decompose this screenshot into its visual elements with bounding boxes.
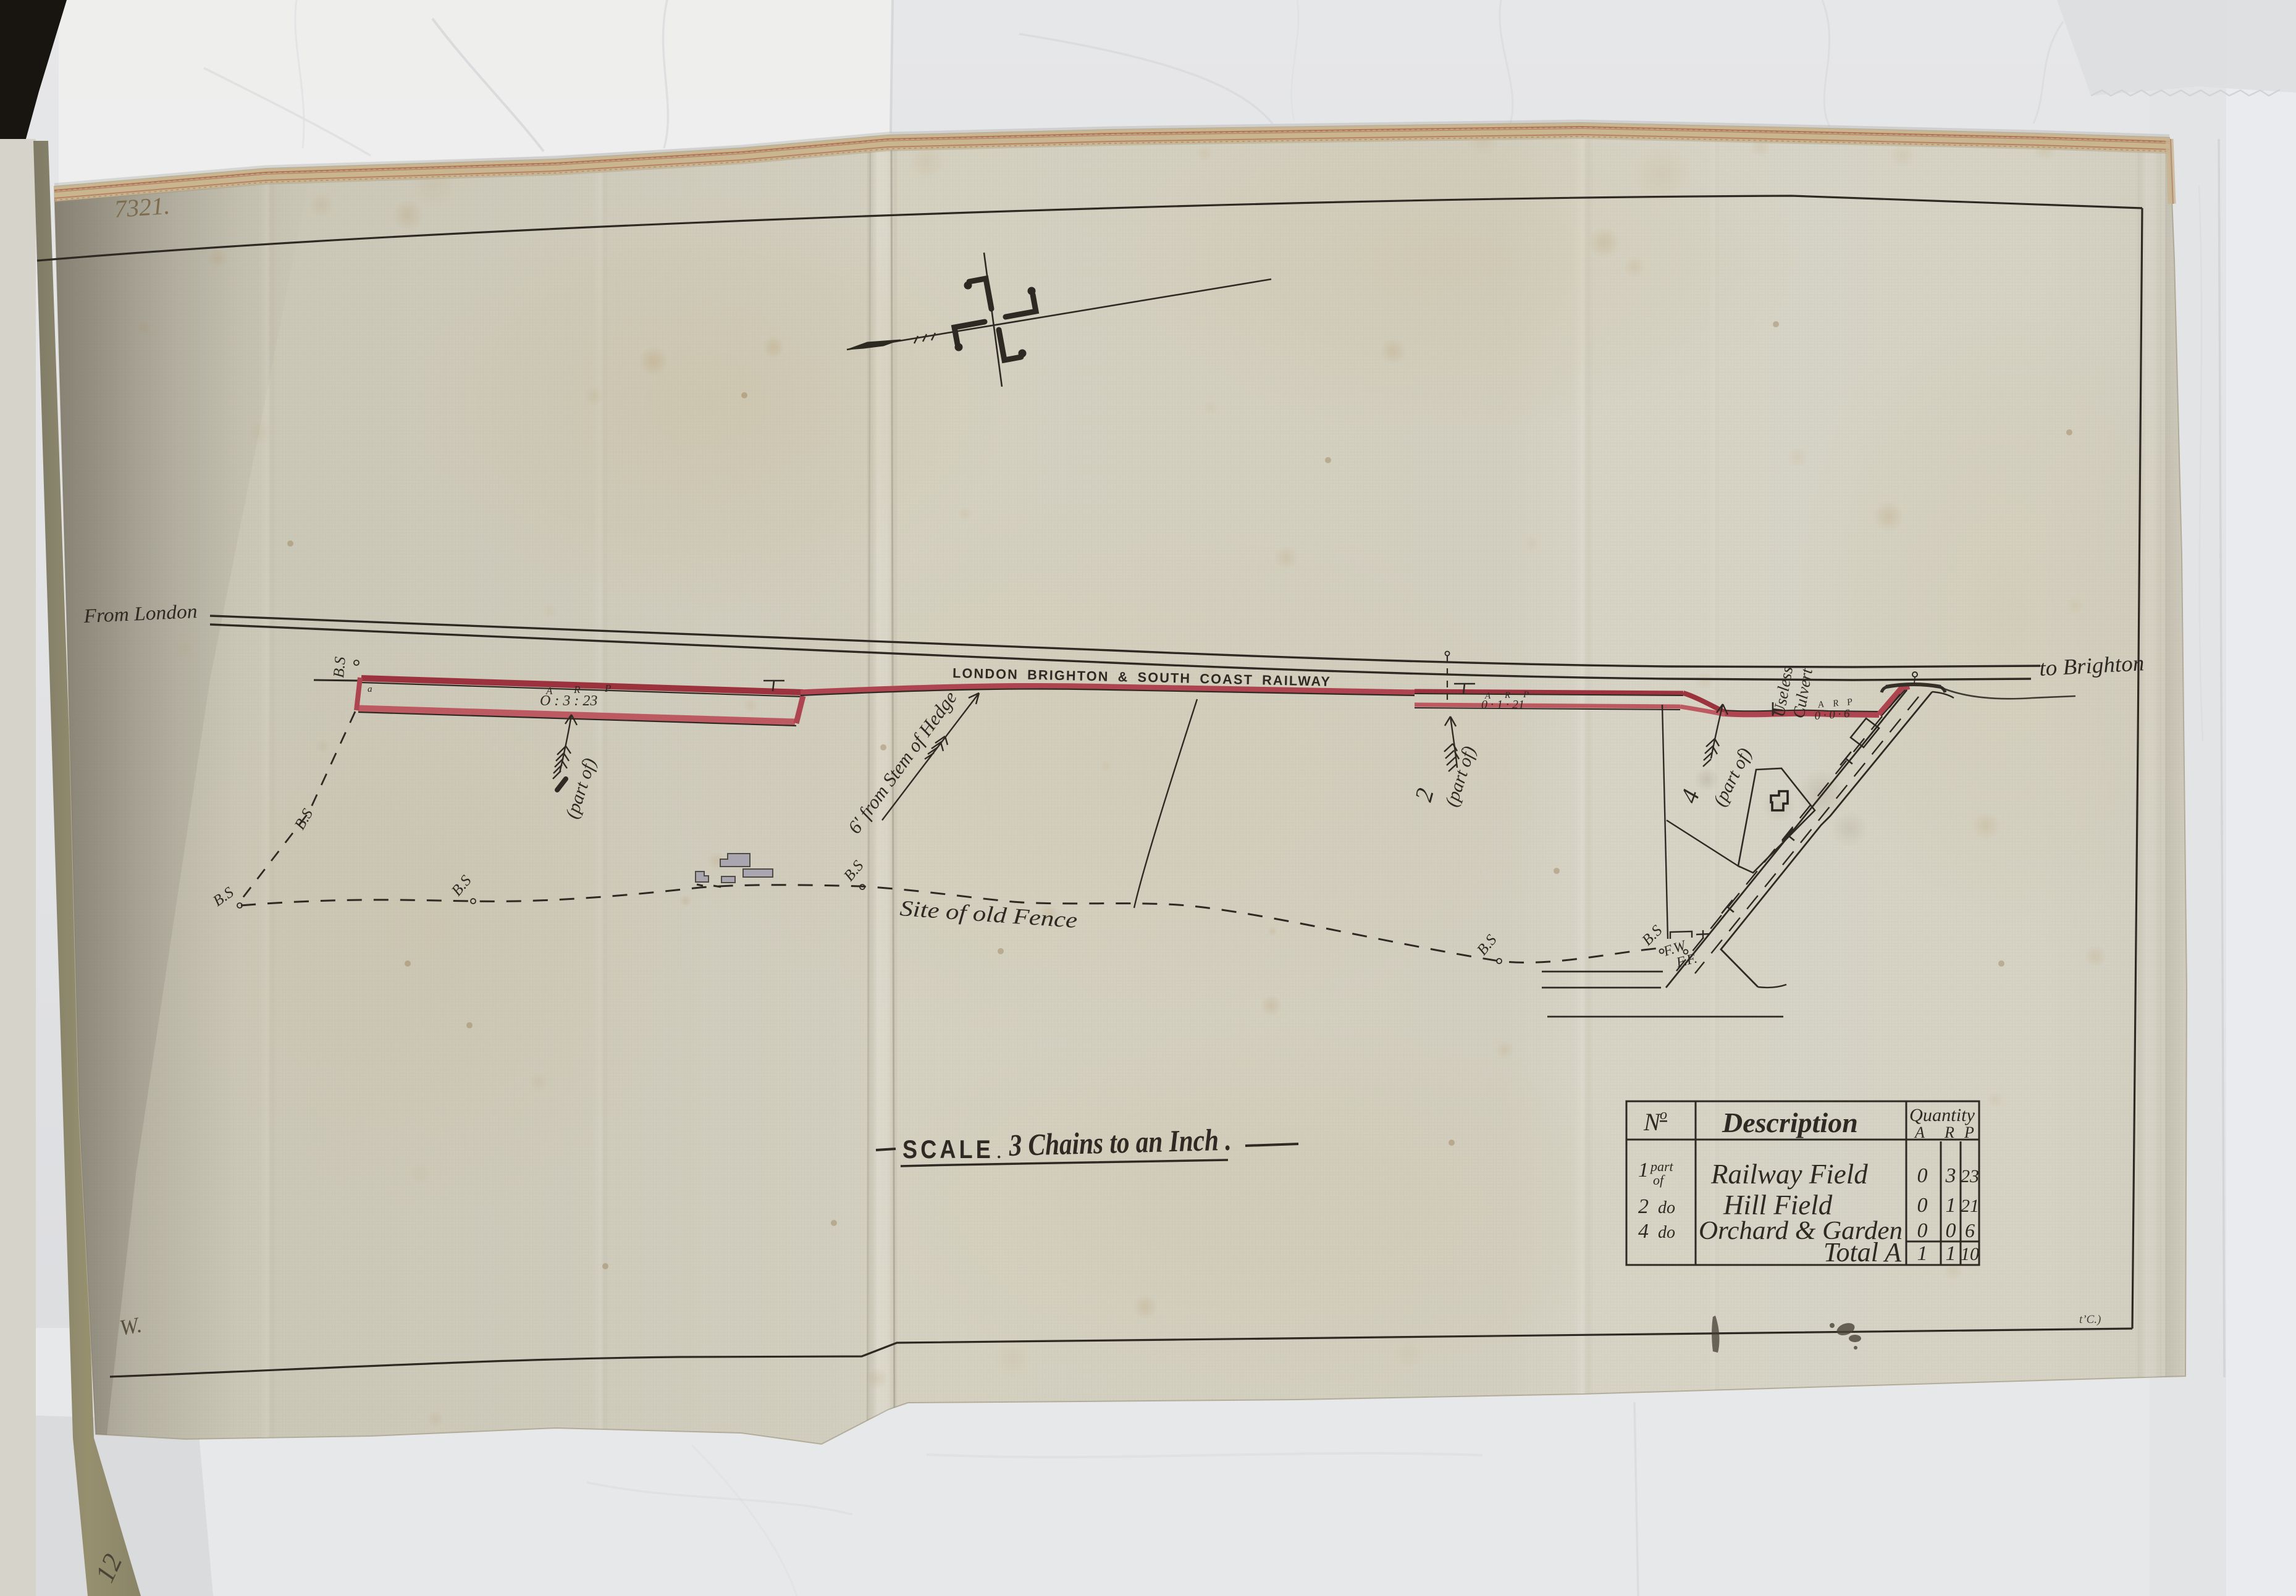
svg-text:2: 2 xyxy=(1638,1195,1649,1218)
svg-text:P: P xyxy=(1964,1123,1974,1141)
svg-text:0: 0 xyxy=(1917,1164,1928,1187)
svg-text:O : 3 : 23: O : 3 : 23 xyxy=(540,693,597,709)
svg-text:Hill Field: Hill Field xyxy=(1723,1190,1833,1220)
svg-text:t’C.): t’C.) xyxy=(2079,1313,2101,1326)
svg-text:4: 4 xyxy=(1638,1220,1649,1243)
svg-text:10: 10 xyxy=(1961,1244,1979,1264)
svg-text:W.: W. xyxy=(117,1312,143,1340)
svg-text:.: . xyxy=(997,1144,1001,1162)
svg-text:7321.: 7321. xyxy=(113,191,170,223)
svg-text:23: 23 xyxy=(1961,1166,1979,1186)
svg-text:0 · 0 · 6: 0 · 0 · 6 xyxy=(1814,707,1851,723)
svg-text:Railway Field: Railway Field xyxy=(1710,1159,1868,1190)
svg-text:o: o xyxy=(1660,1107,1667,1123)
svg-text:Description: Description xyxy=(1722,1107,1858,1138)
svg-text:P: P xyxy=(604,682,611,694)
svg-text:1: 1 xyxy=(1946,1194,1956,1217)
svg-text:A: A xyxy=(1914,1123,1925,1141)
svg-text:0 · 1 · 21: 0 · 1 · 21 xyxy=(1481,698,1524,712)
svg-text:Total A: Total A xyxy=(1823,1237,1902,1267)
svg-text:Quantity: Quantity xyxy=(1909,1105,1975,1125)
svg-text:3: 3 xyxy=(1945,1164,1956,1187)
svg-text:of: of xyxy=(1653,1172,1665,1188)
svg-text:N: N xyxy=(1643,1108,1662,1136)
svg-text:0: 0 xyxy=(1917,1219,1928,1242)
svg-text:1: 1 xyxy=(1917,1242,1928,1265)
svg-text:do: do xyxy=(1658,1223,1675,1242)
svg-text:3 Chains to an Inch .: 3 Chains to an Inch . xyxy=(1008,1122,1232,1162)
svg-text:1: 1 xyxy=(1638,1159,1649,1182)
svg-text:SCALE: SCALE xyxy=(902,1135,994,1164)
svg-text:0: 0 xyxy=(1946,1219,1956,1242)
svg-text:B.S: B.S xyxy=(330,656,349,679)
svg-text:do: do xyxy=(1658,1198,1675,1217)
svg-text:0: 0 xyxy=(1917,1194,1928,1217)
svg-text:21: 21 xyxy=(1961,1196,1979,1216)
svg-text:1: 1 xyxy=(1946,1242,1956,1265)
svg-text:R: R xyxy=(1944,1123,1954,1141)
svg-text:a: a xyxy=(368,684,372,694)
svg-text:6: 6 xyxy=(1965,1219,1975,1241)
